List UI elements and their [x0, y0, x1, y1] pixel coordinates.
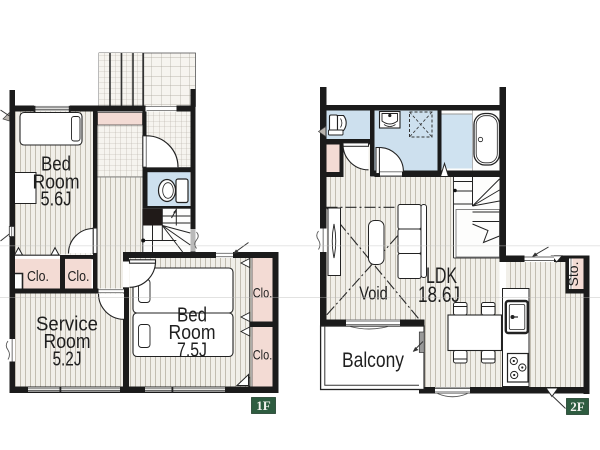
svg-text:7.5J: 7.5J: [177, 340, 207, 362]
svg-text:5.2J: 5.2J: [53, 349, 82, 371]
svg-text:Clo.: Clo.: [253, 347, 273, 363]
svg-text:Clo.: Clo.: [27, 269, 49, 285]
svg-text:5.6J: 5.6J: [41, 189, 72, 211]
svg-text:2F: 2F: [570, 399, 585, 414]
svg-text:Clo.: Clo.: [68, 269, 90, 285]
svg-text:Sto.: Sto.: [566, 262, 581, 287]
svg-text:Void: Void: [359, 284, 388, 304]
svg-text:Balcony: Balcony: [342, 349, 404, 372]
svg-text:Clo.: Clo.: [253, 285, 273, 301]
svg-text:1F: 1F: [256, 398, 271, 413]
svg-text:18.6J: 18.6J: [418, 282, 460, 307]
